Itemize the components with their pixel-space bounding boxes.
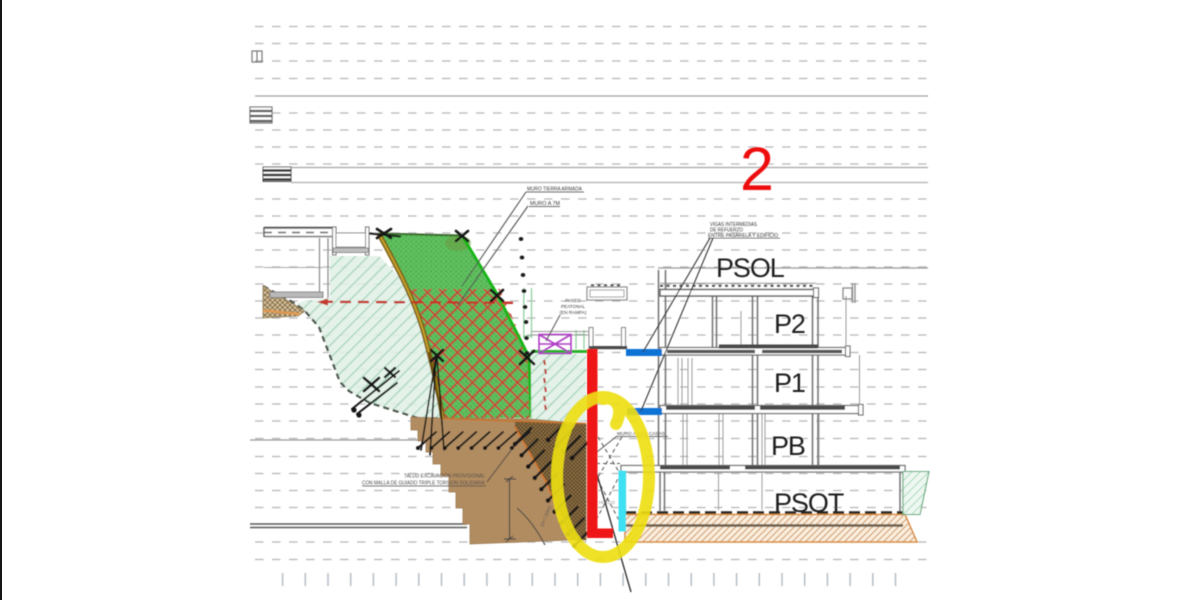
svg-text:P2: P2 bbox=[774, 309, 805, 339]
svg-text:PSOT: PSOT bbox=[774, 488, 844, 518]
svg-text:MURO A 7M: MURO A 7M bbox=[530, 201, 560, 207]
svg-text:PASEO: PASEO bbox=[565, 298, 581, 303]
svg-text:2: 2 bbox=[740, 135, 774, 203]
svg-text:TALUD EXCAVACIÓN PROVISIONAL: TALUD EXCAVACIÓN PROVISIONAL bbox=[404, 473, 485, 480]
svg-text:PEATONAL: PEATONAL bbox=[561, 304, 586, 309]
svg-text:CON MALLA DE GUIADO TRIPLE TOR: CON MALLA DE GUIADO TRIPLE TORSION SOLID… bbox=[362, 481, 485, 487]
svg-text:HUECO: HUECO bbox=[599, 500, 615, 505]
svg-text:(EN RAMPA): (EN RAMPA) bbox=[560, 310, 587, 315]
svg-text:MURO TIERRA ARMADA: MURO TIERRA ARMADA bbox=[527, 187, 583, 193]
svg-text:PB: PB bbox=[771, 431, 805, 461]
svg-text:P1: P1 bbox=[774, 368, 805, 398]
svg-text:PSOL: PSOL bbox=[716, 253, 785, 283]
